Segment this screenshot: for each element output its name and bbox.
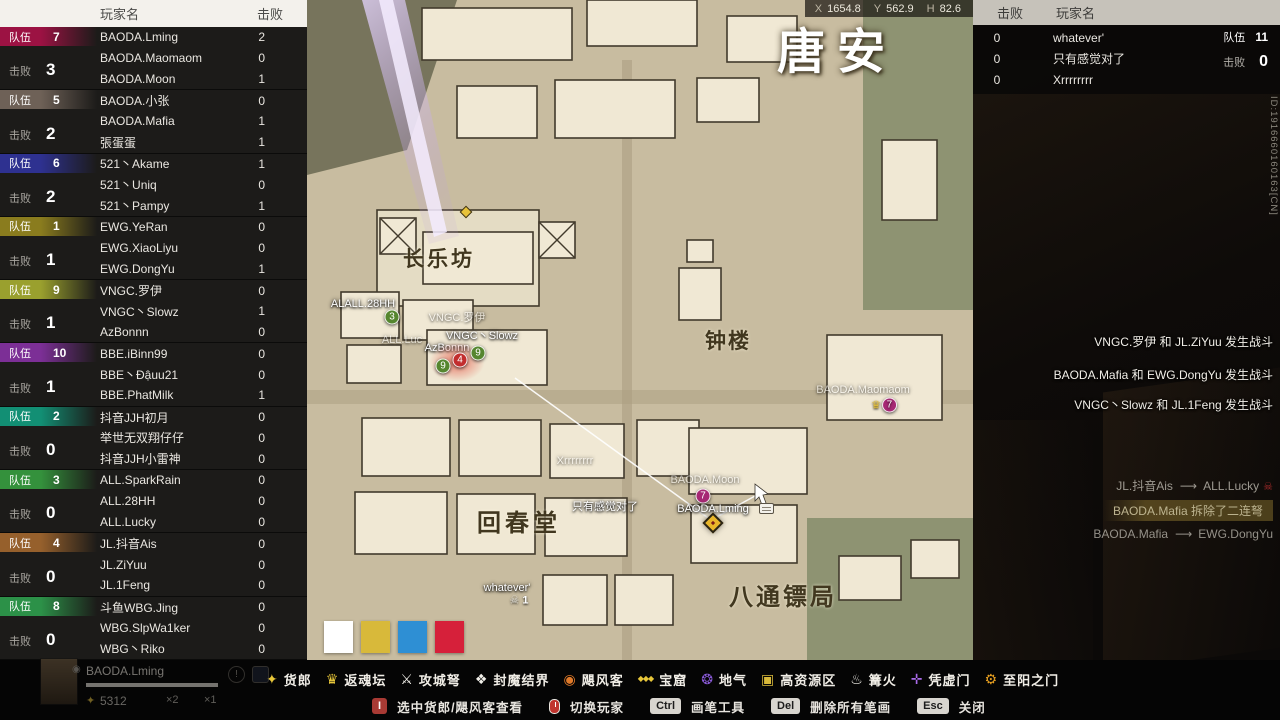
spectate-eye-icon: ◉ [72, 664, 81, 675]
player-kills: 0 [985, 52, 1009, 66]
player-row[interactable]: JL.ZiYuu 0 [97, 554, 307, 575]
team-kills: 击败2 [9, 187, 55, 207]
team-players: ALL.SparkRain 0 ALL.28HH 0 ALL.Lucky 0 [97, 470, 307, 532]
location-label: 八通镖局 [729, 577, 837, 612]
team-block: 队伍6 击败2 521丶Akame 1 521丶Uniq 0 521丶Pampy… [0, 154, 307, 217]
legend-item: ❖ 封魔结界 [475, 670, 550, 689]
spectated-team-badge: 队伍11 [1223, 29, 1268, 45]
player-kills: 0 [258, 515, 265, 529]
earth-qi-icon: ❂ [701, 672, 713, 686]
map-player-label: whatever' [484, 582, 531, 594]
map-player-label: BAODA.Maomaom [816, 384, 910, 396]
player-kills: 0 [258, 51, 265, 65]
player-kills: 0 [985, 73, 1009, 87]
player-name: ALL.Lucky [100, 515, 156, 529]
player-name: 521丶Uniq [100, 176, 157, 193]
brush-color-swatch[interactable] [324, 621, 353, 653]
player-name: 張蛋蛋 [100, 134, 136, 151]
player-name: EWG.XiaoLiyu [100, 241, 178, 255]
hint-label: 删除所有笔画 [810, 697, 891, 716]
player-kills: 0 [258, 241, 265, 255]
player-kills: 0 [985, 31, 1009, 45]
battle-message: VNGC丶Slowz 和 JL.1Feng 发生战斗 [1074, 396, 1273, 413]
key-hint: 切换玩家 [549, 697, 624, 716]
team-summary: 队伍7 击败3 [0, 27, 97, 89]
player-kills: 0 [258, 284, 265, 298]
map-team-circle: 9 [436, 359, 451, 374]
player-kills: 1 [258, 72, 265, 86]
right-scoreboard-header: 击败 玩家名 [973, 0, 1280, 25]
hint-label: 画笔工具 [691, 697, 745, 716]
attack-arrow-icon: ⟶ [1175, 527, 1191, 541]
keycap: Esc [917, 698, 949, 714]
high-resource-icon: ▣ [761, 672, 774, 686]
team-badge: 队伍4 [0, 533, 97, 552]
team-summary: 队伍6 击败2 [0, 154, 97, 216]
hurricane-courier-icon: ◉ [563, 672, 575, 686]
team-summary: 队伍1 击败1 [0, 217, 97, 279]
player-kills: 0 [258, 368, 265, 382]
player-kills: 0 [258, 347, 265, 361]
player-name: ALL.SparkRain [100, 473, 181, 487]
legend-label: 高资源区 [780, 670, 836, 689]
team-label: 队伍 [1223, 32, 1245, 44]
player-row[interactable]: JL.1Feng 0 [97, 575, 307, 596]
legend-item: ✛ 凭虚门 [911, 670, 971, 689]
player-kills: 0 [258, 325, 265, 339]
player-row[interactable]: 張蛋蛋 1 [97, 132, 307, 153]
map-player-label: VNGC.罗伊 [429, 309, 486, 325]
legend-label: 攻城弩 [419, 670, 461, 689]
player-name: VNGC丶Slowz [100, 303, 179, 320]
player-name: JL.ZiYuu [100, 558, 147, 572]
team-kills: 击败0 [9, 630, 55, 650]
player-kills: 0 [258, 94, 265, 108]
legend-item: ◉ 飓风客 [563, 670, 623, 689]
attack-arrow-icon: ⟶ [1180, 479, 1196, 493]
map-player-label: ALALL.28HH [331, 298, 395, 310]
team-players: 抖音JJH初月 0 举世无双翔仔仔 0 抖音JJH小雷神 0 [97, 407, 307, 469]
team-badge: 队伍6 [0, 154, 97, 173]
team-players: VNGC.罗伊 0 VNGC丶Slowz 1 AzBonnn 0 [97, 280, 307, 342]
team-block: 队伍1 击败1 EWG.YeRan 0 EWG.XiaoLiyu 0 EWG.D… [0, 217, 307, 280]
legend-item: ♛ 返魂坛 [326, 670, 387, 689]
team-badge: 队伍5 [0, 90, 97, 109]
kills-column-header: 击败 [257, 4, 283, 23]
location-label: 回春堂 [477, 503, 561, 538]
team-players: BBE.iBinn99 0 BBE丶Đậuu21 0 BBE.PhatMilk … [97, 343, 307, 405]
team-kills: 击败1 [9, 313, 55, 333]
team-players: 521丶Akame 1 521丶Uniq 0 521丶Pampy 1 [97, 154, 307, 216]
key-hint: Esc 关闭 [917, 697, 986, 716]
player-kills: 1 [258, 388, 265, 402]
player-kills: 0 [258, 558, 265, 572]
team-summary: 队伍4 击败0 [0, 533, 97, 595]
battle-message: BAODA.Mafia 和 EWG.DongYu 发生战斗 [1054, 366, 1273, 383]
team-kills: 击败0 [9, 503, 55, 523]
player-name: 抖音JJH小雷神 [100, 450, 181, 467]
legend-item: ⚔ 攻城弩 [400, 670, 461, 689]
team-kills: 击败0 [9, 567, 55, 587]
player-name: BBE.iBinn99 [100, 347, 167, 361]
player-name: EWG.DongYu [100, 262, 175, 276]
map-player-label: Xrrrrrrrr [557, 455, 594, 467]
team-players: 斗鱼WBG.Jing 0 WBG.SlpWa1ker 0 WBG丶Riko 0 [97, 597, 307, 659]
player-row[interactable]: ALL.SparkRain 0 [97, 470, 307, 491]
hint-label: 切换玩家 [570, 697, 624, 716]
team-block: 队伍2 击败0 抖音JJH初月 0 举世无双翔仔仔 0 抖音JJH小雷神 0 [0, 407, 307, 470]
legend-item: ◆◆◆ 宝窟 [638, 670, 687, 689]
player-name: ALL.28HH [100, 494, 155, 508]
kill-feed-row: BAODA.Mafia⟶EWG.DongYu [1093, 527, 1273, 541]
team-block: 队伍10 击败1 BBE.iBinn99 0 BBE丶Đậuu21 0 BBE.… [0, 343, 307, 406]
team-list: 队伍7 击败3 BAODA.Lming 2 BAODA.Maomaom 0 BA… [0, 27, 307, 660]
campfire-icon: ♨ [850, 672, 863, 686]
player-kills: 0 [258, 410, 265, 424]
team-players: BAODA.Lming 2 BAODA.Maomaom 0 BAODA.Moon… [97, 27, 307, 89]
player-kills: 2 [258, 30, 265, 44]
player-row[interactable]: 抖音JJH小雷神 0 [97, 448, 307, 469]
player-row[interactable]: BAODA.Mafia 1 [97, 111, 307, 132]
alert-icon: ! [228, 666, 245, 683]
player-row[interactable]: ALL.Lucky 0 [97, 512, 307, 533]
player-row[interactable]: BBE.iBinn99 0 [97, 343, 307, 364]
siege-crossbow-icon: ⚔ [400, 672, 413, 686]
legend-item: ♨ 篝火 [850, 670, 897, 689]
player-name: JL.1Feng [100, 578, 150, 592]
note-box-icon [759, 503, 774, 514]
player-kills: 0 [258, 621, 265, 635]
player-name: 抖音JJH初月 [100, 409, 169, 426]
spectated-team-kills: 击败0 [1223, 53, 1268, 71]
team-badge: 队伍9 [0, 280, 97, 299]
player-name: AzBonnn [100, 325, 149, 339]
location-label: 长乐坊 [403, 243, 475, 273]
player-name: 斗鱼WBG.Jing [100, 599, 178, 616]
player-kills: 1 [258, 199, 265, 213]
player-name-column-header: 玩家名 [1056, 3, 1095, 22]
player-row[interactable]: 521丶Akame 1 [97, 154, 307, 175]
legend-label: 货郎 [284, 670, 312, 689]
kills-label: 击败 [1223, 54, 1245, 70]
keyboard-hints: I 选中货郎/飓风客查看 切换玩家 Ctrl 画笔工具 Del 删除所有笔画 E… [372, 695, 1012, 717]
brush-color-swatch[interactable] [398, 621, 427, 653]
item-count: ×2 [166, 694, 179, 706]
down-skull-icon: ☠ [1263, 481, 1273, 493]
player-row[interactable]: 521丶Uniq 0 [97, 174, 307, 195]
player-kills: 0 [258, 431, 265, 445]
player-row[interactable]: BAODA.Lming 2 [97, 27, 307, 48]
map-team-circle: 3 [385, 310, 400, 325]
player-name: whatever' [1053, 31, 1104, 45]
player-name: VNGC.罗伊 [100, 282, 162, 299]
legend-label: 封魔结界 [493, 670, 549, 689]
player-kills: 0 [258, 537, 265, 551]
player-kills: 0 [258, 600, 265, 614]
map-player-label: BAODA.Moon [670, 474, 739, 486]
keycap: Ctrl [650, 698, 681, 714]
player-kills: 1 [258, 114, 265, 128]
map-canvas[interactable]: X 1654.8 Y 562.9 H 82.6 唐安 长乐坊 钟楼 回春堂 八通… [307, 0, 973, 660]
player-row[interactable]: 举世无双翔仔仔 0 [97, 428, 307, 449]
player-row[interactable]: VNGC丶Slowz 1 [97, 301, 307, 322]
team-badge: 队伍10 [0, 343, 97, 362]
team-kills: 击败1 [9, 250, 55, 270]
player-kills: 0 [258, 220, 265, 234]
brush-color-swatch[interactable] [361, 621, 390, 653]
kills-column-header: 击败 [997, 3, 1023, 22]
region-title: 唐安 [777, 12, 897, 82]
team-badge: 队伍3 [0, 470, 97, 489]
kill-feed-row: JL.抖音Ais⟶ALL.Lucky☠ [1116, 477, 1273, 494]
player-name: BAODA.Lming [86, 664, 164, 678]
legend-label: 飓风客 [582, 670, 624, 689]
map-team-circle: 4 [453, 353, 468, 368]
team-kills: 击败3 [9, 60, 55, 80]
death-skull-icon: ☠1 [510, 594, 529, 607]
team-summary: 队伍9 击败1 [0, 280, 97, 342]
player-kills: 0 [258, 452, 265, 466]
battle-message: VNGC.罗伊 和 JL.ZiYuu 发生战斗 [1094, 333, 1273, 350]
legend-item: ▣ 高资源区 [761, 670, 836, 689]
hint-label: 关闭 [959, 697, 986, 716]
map-player-label: ALL.Luc [382, 334, 422, 346]
map-team-circle: 7 [882, 398, 897, 413]
player-row[interactable]: 0 Xrrrrrrrr [973, 69, 1280, 90]
player-row[interactable]: WBG.SlpWa1ker 0 [97, 617, 307, 638]
player-row[interactable]: ALL.28HH 0 [97, 491, 307, 512]
map-legend: ✦ 货郎 ♛ 返魂坛 ⚔ 攻城弩 ❖ 封魔结界 ◉ 飓风客 ◆◆◆ 宝窟 ❂ 地… [266, 666, 1073, 692]
coord-h-value: 82.6 [940, 3, 961, 15]
sun-gate-icon: ⚙ [985, 672, 998, 686]
legend-item: ⚙ 至阳之门 [985, 670, 1060, 689]
player-kills: 1 [258, 262, 265, 276]
team-block: 队伍7 击败3 BAODA.Lming 2 BAODA.Maomaom 0 BA… [0, 27, 307, 90]
player-name: BAODA.Moon [100, 72, 175, 86]
player-row[interactable]: AzBonnn 0 [97, 322, 307, 343]
item-slot-icon [252, 666, 269, 683]
legend-label: 宝窟 [659, 670, 687, 689]
team-summary: 队伍8 击败0 [0, 597, 97, 659]
player-row[interactable]: EWG.XiaoLiyu 0 [97, 238, 307, 259]
player-kills: 1 [258, 135, 265, 149]
team-summary: 队伍5 击败2 [0, 90, 97, 152]
player-kills: 0 [258, 178, 265, 192]
scoreboard-header: 玩家名 击败 [0, 0, 307, 27]
legend-label: 凭虚门 [929, 670, 971, 689]
player-name: BBE.PhatMilk [100, 388, 173, 402]
map-player-label: VNGC丶Slowz [446, 327, 518, 343]
player-name: BAODA.Mafia [100, 114, 175, 128]
player-name: WBG.SlpWa1ker [100, 621, 190, 635]
team-number: 11 [1255, 30, 1268, 44]
player-row[interactable]: BAODA.Moon 1 [97, 69, 307, 90]
team-badge: 队伍2 [0, 407, 97, 426]
legend-label: 地气 [719, 670, 747, 689]
right-spectator-panel: 击败 玩家名 0 whatever' 0 只有感觉对了 0 Xrrrrrrrr … [973, 0, 1280, 660]
void-gate-icon: ✛ [911, 672, 923, 686]
player-row[interactable]: 斗鱼WBG.Jing 0 [97, 597, 307, 618]
team-summary: 队伍10 击败1 [0, 343, 97, 405]
legend-item: ❂ 地气 [701, 670, 747, 689]
key-hint: I 选中货郎/飓风客查看 [372, 697, 523, 716]
player-row[interactable]: VNGC.罗伊 0 [97, 280, 307, 301]
leader-crown-icon: ♛7 [871, 398, 897, 413]
sealing-barrier-icon: ❖ [475, 672, 488, 686]
team-summary: 队伍3 击败0 [0, 470, 97, 532]
kills-value: 0 [1259, 53, 1268, 71]
health-bar [86, 683, 218, 687]
legend-label: 篝火 [869, 670, 897, 689]
map-player-label: 只有感觉对了 [572, 498, 638, 514]
player-name: 只有感觉对了 [1053, 50, 1125, 67]
team-block: 队伍5 击败2 BAODA.小张 0 BAODA.Mafia 1 張蛋蛋 1 [0, 90, 307, 153]
team-kills: 击败0 [9, 440, 55, 460]
brush-color-swatch[interactable] [435, 621, 464, 653]
player-kills: 0 [258, 473, 265, 487]
kill-feed-highlight: BAODA.Mafia 拆除了二连弩 [1103, 500, 1273, 521]
player-row[interactable]: BBE.PhatMilk 1 [97, 385, 307, 406]
keycap: Del [771, 698, 800, 714]
spectator-scene-planks [973, 420, 1093, 660]
player-name: BAODA.Lming [100, 30, 178, 44]
team-block: 队伍9 击败1 VNGC.罗伊 0 VNGC丶Slowz 1 AzBonnn 0 [0, 280, 307, 343]
player-row[interactable]: BBE丶Đậuu21 0 [97, 364, 307, 385]
location-label: 钟楼 [705, 325, 751, 355]
map-terrain [307, 0, 973, 660]
player-name: 521丶Akame [100, 155, 169, 172]
mouse-icon [549, 699, 560, 714]
team-badge: 队伍7 [0, 27, 97, 46]
keycap: I [372, 698, 387, 714]
team-players: JL.抖音Ais 0 JL.ZiYuu 0 JL.1Feng 0 [97, 533, 307, 595]
player-name: JL.抖音Ais [100, 535, 157, 552]
player-name-column-header: 玩家名 [100, 4, 139, 23]
player-kills: 1 [258, 304, 265, 318]
item-count: ×1 [204, 694, 217, 706]
player-name: 521丶Pampy [100, 197, 169, 214]
player-name: EWG.YeRan [100, 220, 168, 234]
player-row[interactable]: 521丶Pampy 1 [97, 195, 307, 216]
key-hint: Del 删除所有笔画 [771, 697, 891, 716]
team-kills: 击败1 [9, 377, 55, 397]
legend-label: 返魂坛 [344, 670, 386, 689]
team-players: EWG.YeRan 0 EWG.XiaoLiyu 0 EWG.DongYu 1 [97, 217, 307, 279]
treasure-cave-icon: ◆◆◆ [638, 675, 653, 683]
map-team-circle: 9 [471, 346, 486, 361]
team-kills: 击败2 [9, 124, 55, 144]
player-kills: 0 [258, 494, 265, 508]
spectated-player-card: ◉ BAODA.Lming ✦ 5312 ×2 ×1 ! [26, 652, 276, 718]
coin-icon: ✦ [86, 694, 95, 707]
player-row[interactable]: EWG.YeRan 0 [97, 217, 307, 238]
key-hint: Ctrl 画笔工具 [650, 697, 745, 716]
team-badge: 队伍8 [0, 597, 97, 616]
team-badge: 队伍1 [0, 217, 97, 236]
team-block: 队伍3 击败0 ALL.SparkRain 0 ALL.28HH 0 ALL.L… [0, 470, 307, 533]
player-row[interactable]: BAODA.小张 0 [97, 90, 307, 111]
player-kills: 0 [258, 578, 265, 592]
map-team-circle: 7 [696, 489, 711, 504]
team-block: 队伍8 击败0 斗鱼WBG.Jing 0 WBG.SlpWa1ker 0 WBG… [0, 597, 307, 660]
team-block: 队伍4 击败0 JL.抖音Ais 0 JL.ZiYuu 0 JL.1Feng 0 [0, 533, 307, 596]
player-name: BAODA.Maomaom [100, 51, 202, 65]
hint-label: 选中货郎/飓风客查看 [397, 697, 523, 716]
player-kills: 1 [258, 157, 265, 171]
team-players: BAODA.小张 0 BAODA.Mafia 1 張蛋蛋 1 [97, 90, 307, 152]
left-scoreboard-panel: 玩家名 击败 队伍7 击败3 BAODA.Lming 2 BAODA.Maoma… [0, 0, 307, 660]
player-row[interactable]: JL.抖音Ais 0 [97, 533, 307, 554]
team-summary: 队伍2 击败0 [0, 407, 97, 469]
player-name: Xrrrrrrrr [1053, 73, 1093, 87]
currency-value: 5312 [100, 694, 127, 708]
player-row[interactable]: EWG.DongYu 1 [97, 258, 307, 279]
session-id-watermark: ID:1916660160163[CN] [1268, 96, 1279, 216]
player-name: BBE丶Đậuu21 [100, 366, 178, 383]
coord-h-label: H [927, 3, 935, 15]
legend-label: 至阳之门 [1003, 670, 1059, 689]
player-name: 举世无双翔仔仔 [100, 429, 184, 446]
player-name: BAODA.小张 [100, 92, 169, 109]
soul-altar-icon: ♛ [326, 672, 339, 686]
player-row[interactable]: 抖音JJH初月 0 [97, 407, 307, 428]
player-row[interactable]: BAODA.Maomaom 0 [97, 48, 307, 69]
